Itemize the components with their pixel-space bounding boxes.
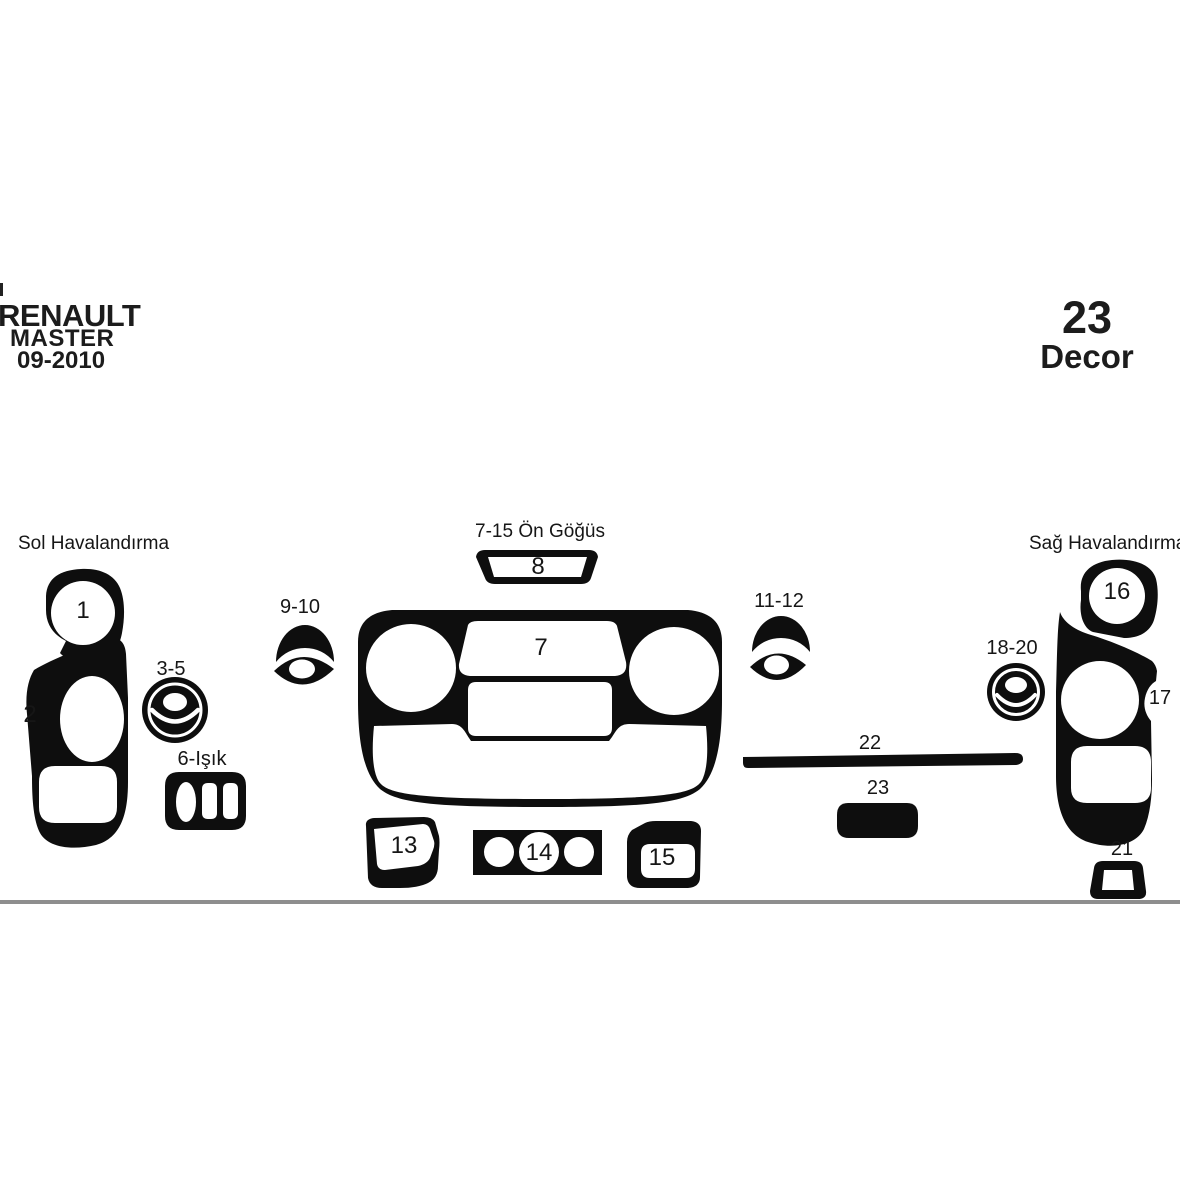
- center-group-label: 7-15 Ön Göğüs: [475, 522, 605, 541]
- piece-23-label: 23: [867, 778, 889, 798]
- piece-3-5-label: 3-5: [157, 659, 186, 679]
- left-edge-artifact: [0, 283, 3, 296]
- piece-13-label: 13: [391, 834, 418, 858]
- right-group-label: Sağ Havalandırma: [1029, 534, 1180, 553]
- left-group-label: Sol Havalandırma: [18, 534, 169, 553]
- piece-16-label: 16: [1104, 580, 1131, 604]
- piece-17-shape: [1056, 612, 1157, 846]
- piece-21-label: 21: [1111, 839, 1133, 859]
- piece-9-10-dome: [276, 625, 334, 662]
- diagram-canvas: [0, 0, 1180, 1180]
- piece-3-5-group: [142, 677, 208, 743]
- piece-11-12-label: 11-12: [754, 591, 804, 611]
- piece-14-hole-right: [564, 837, 594, 867]
- piece-2-shape: [26, 638, 128, 848]
- bottom-divider: [0, 900, 1180, 904]
- piece-11-12-dome: [752, 616, 810, 652]
- piece-17-label: 17: [1149, 688, 1171, 708]
- piece-18-20-label: 18-20: [986, 638, 1037, 658]
- piece-7-label: 7: [534, 636, 547, 660]
- piece-18-20-knob-hole: [1005, 677, 1027, 693]
- piece-14-hole-left: [484, 837, 514, 867]
- piece-2-label: 2: [23, 703, 36, 727]
- piece-14-label: 14: [526, 841, 553, 865]
- piece-9-10-eye: [274, 657, 334, 685]
- piece-1-label: 1: [76, 599, 89, 623]
- piece-23-shape: [837, 803, 918, 838]
- piece-6-label: 6-Işık: [178, 749, 227, 769]
- piece-8-label: 8: [531, 555, 544, 579]
- piece-3-5-knob-hole: [163, 693, 187, 711]
- piece-22-shape: [743, 753, 1023, 768]
- piece-6-shape: [165, 772, 246, 830]
- piece-18-20-group: [987, 663, 1045, 721]
- piece-9-10-label: 9-10: [280, 597, 320, 617]
- piece-22-label: 22: [859, 733, 881, 753]
- product-image: RENAULT MASTER 09-2010 23 Decor: [0, 0, 1180, 1180]
- piece-21-shape: [1090, 861, 1146, 899]
- piece-11-12-eye: [750, 653, 806, 680]
- piece-15-label: 15: [649, 846, 676, 870]
